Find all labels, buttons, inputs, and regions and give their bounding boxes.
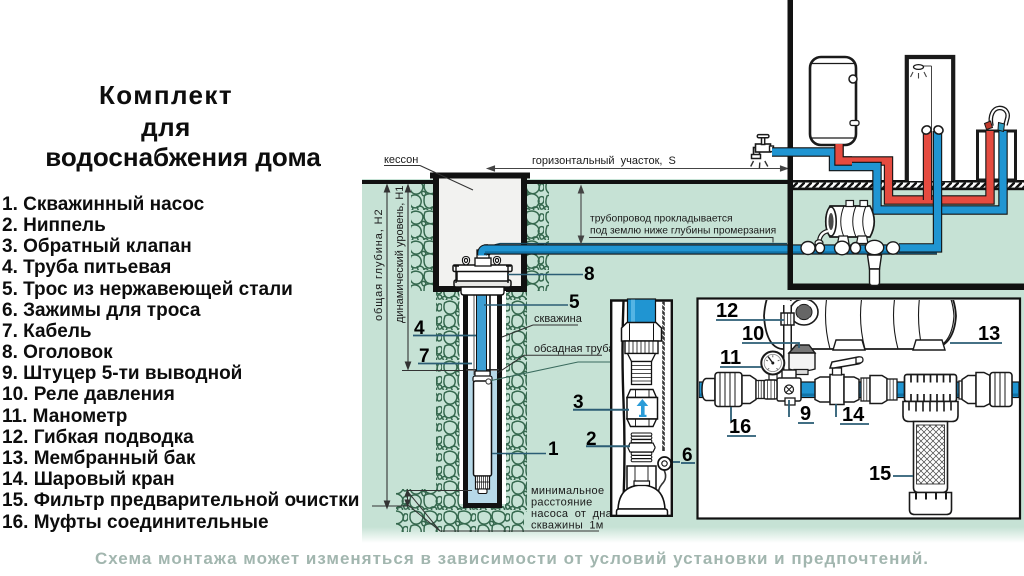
svg-text:обсадная труба: обсадная труба bbox=[534, 343, 615, 355]
svg-text:8. Оголовок: 8. Оголовок bbox=[2, 342, 113, 363]
svg-text:13: 13 bbox=[978, 323, 1000, 345]
svg-text:9. Штуцер 5-ти выводной: 9. Штуцер 5-ти выводной bbox=[2, 363, 242, 384]
svg-text:1: 1 bbox=[548, 439, 559, 460]
svg-text:5. Трос из нержавеющей стали: 5. Трос из нержавеющей стали bbox=[2, 279, 293, 300]
svg-text:1. Скважинный насос: 1. Скважинный насос bbox=[2, 194, 205, 215]
svg-text:кессон: кессон bbox=[384, 154, 418, 166]
svg-text:насоса от дна: насоса от дна bbox=[531, 508, 613, 520]
svg-text:расстояние: расстояние bbox=[531, 497, 593, 509]
svg-text:трубопровод прокладывается: трубопровод прокладывается bbox=[590, 213, 733, 225]
svg-text:15: 15 bbox=[869, 463, 891, 485]
svg-text:11: 11 bbox=[720, 347, 741, 369]
svg-text:3. Обратный клапан: 3. Обратный клапан bbox=[2, 236, 192, 257]
svg-text:горизонтальный участок, S: горизонтальный участок, S bbox=[532, 155, 676, 167]
svg-text:скважины 1м: скважины 1м bbox=[531, 520, 604, 532]
svg-text:2. Ниппель: 2. Ниппель bbox=[2, 215, 106, 236]
svg-text:9: 9 bbox=[800, 403, 811, 425]
svg-text:10: 10 bbox=[742, 323, 764, 345]
svg-text:4. Труба питьевая: 4. Труба питьевая bbox=[2, 257, 171, 278]
svg-text:под землю ниже глубины промерз: под землю ниже глубины промерзания bbox=[590, 225, 776, 237]
svg-text:5: 5 bbox=[569, 292, 580, 313]
svg-text:8: 8 bbox=[584, 264, 595, 285]
svg-text:14: 14 bbox=[842, 404, 865, 426]
svg-text:7. Кабель: 7. Кабель bbox=[2, 321, 92, 342]
svg-text:11. Манометр: 11. Манометр bbox=[2, 406, 127, 427]
svg-text:10. Реле давления: 10. Реле давления bbox=[2, 384, 175, 405]
svg-text:скважина: скважина bbox=[534, 313, 583, 325]
svg-text:общая глубина, Н2: общая глубина, Н2 bbox=[373, 208, 385, 321]
svg-text:13. Мембранный бак: 13. Мембранный бак bbox=[2, 448, 196, 469]
svg-text:Схема монтажа может изменяться: Схема монтажа может изменяться в зависим… bbox=[95, 549, 929, 568]
svg-text:16. Муфты соединительные: 16. Муфты соединительные bbox=[2, 512, 269, 533]
svg-text:16: 16 bbox=[729, 416, 751, 438]
svg-text:водоснабжения дома: водоснабжения дома bbox=[45, 142, 321, 172]
svg-text:динамический уровень, Н1: динамический уровень, Н1 bbox=[394, 186, 406, 323]
svg-text:12: 12 bbox=[716, 300, 738, 322]
svg-text:14. Шаровый кран: 14. Шаровый кран bbox=[2, 469, 175, 490]
svg-text:12. Гибкая подводка: 12. Гибкая подводка bbox=[2, 427, 194, 448]
svg-text:15. Фильтр предварительной очи: 15. Фильтр предварительной очистки bbox=[2, 490, 359, 511]
svg-text:6. Зажимы для троса: 6. Зажимы для троса bbox=[2, 300, 201, 321]
svg-text:Комплект: Комплект bbox=[99, 80, 233, 110]
svg-text:минимальное: минимальное bbox=[531, 485, 604, 497]
svg-text:для: для bbox=[141, 112, 191, 142]
